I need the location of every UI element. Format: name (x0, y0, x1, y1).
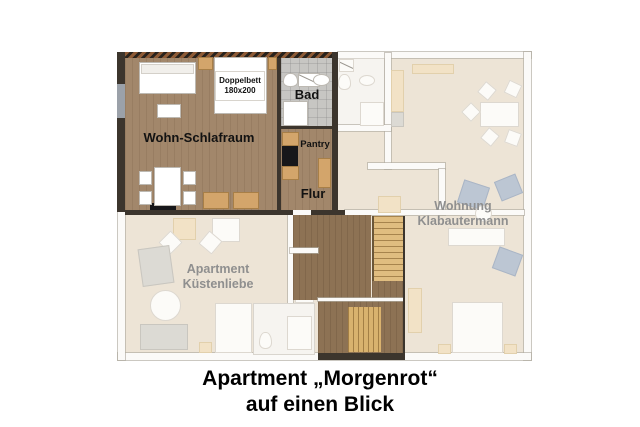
room-label-flur: Flur (293, 186, 333, 201)
landing-floor (293, 215, 371, 300)
staircase-lower (348, 307, 381, 352)
wall-apartment-bottom (125, 210, 345, 215)
shower (287, 316, 312, 350)
neighbor-label-line1: Apartment (158, 262, 278, 277)
pantry-cabinet (282, 166, 299, 180)
sink (313, 74, 330, 86)
chair (139, 171, 152, 185)
bed-size-line2: 180x200 (216, 86, 264, 96)
window (117, 84, 125, 118)
neighbor-label-line2: Küstenliebe (158, 277, 278, 292)
room-label-pantry: Pantry (298, 139, 332, 150)
nightstand (504, 344, 517, 354)
wardrobe (408, 288, 422, 333)
room-label-wohn-schlafraum: Wohn-Schlafraum (124, 130, 274, 145)
shower (360, 102, 384, 126)
caption: Apartment „Morgenrot“ auf einen Blick (0, 366, 640, 418)
neighbor-label-line1: Wohnung (398, 199, 528, 214)
dining-table (154, 167, 181, 206)
wall-bad-pantry (281, 126, 332, 129)
wall-room-bad (277, 58, 281, 210)
chair (183, 171, 196, 185)
wall-landing-lower (318, 298, 403, 301)
bed-kuestenliebe (215, 303, 252, 353)
toilet (338, 74, 351, 90)
table (448, 228, 505, 246)
caption-line1: Apartment „Morgenrot“ (0, 366, 640, 392)
flur-bench (318, 158, 331, 188)
wall-klab-living (368, 163, 445, 169)
bed-size-line1: Doppelbett (216, 76, 264, 86)
sofa-back (141, 64, 194, 74)
nightstand (268, 57, 277, 70)
coffee-table (157, 104, 181, 118)
round-table (150, 290, 181, 321)
nightstand (438, 344, 451, 354)
sink (359, 75, 375, 86)
floor-plan: Wohn-Schlafraum Doppelbett 180x200 Bad P… (114, 48, 532, 362)
neighbor-label-line2: Klabautermann (398, 214, 528, 229)
chair (183, 191, 196, 205)
caption-line2: auf einen Blick (0, 392, 640, 418)
door-opening-flur (293, 210, 311, 215)
outer-wall-left-faded (118, 212, 125, 360)
toilet (283, 73, 298, 87)
bed-size-label: Doppelbett 180x200 (215, 71, 265, 101)
wall-stairwell-right (403, 216, 405, 353)
dresser (233, 192, 259, 209)
room-label-bad: Bad (281, 87, 333, 102)
pantry-appliance (282, 146, 298, 166)
cabinet (391, 112, 404, 127)
bed-klabautermann (452, 302, 503, 353)
floor-plan-image: Wohn-Schlafraum Doppelbett 180x200 Bad P… (0, 0, 640, 427)
washing-machine (339, 59, 354, 72)
neighbor-label-kuestenliebe: Apartment Küstenliebe (158, 262, 278, 292)
wall-stairwell-bottom (318, 353, 405, 360)
chair (139, 191, 152, 205)
bench (199, 342, 212, 353)
wardrobe (391, 70, 404, 112)
sideboard (412, 64, 454, 74)
dresser (203, 192, 229, 209)
pantry-cabinet (282, 132, 299, 146)
dining-table (480, 102, 519, 127)
sideboard (140, 324, 188, 350)
toilet (259, 332, 272, 349)
neighbor-label-klabautermann: Wohnung Klabautermann (398, 199, 528, 229)
shower (283, 101, 308, 126)
nightstand (198, 57, 213, 70)
